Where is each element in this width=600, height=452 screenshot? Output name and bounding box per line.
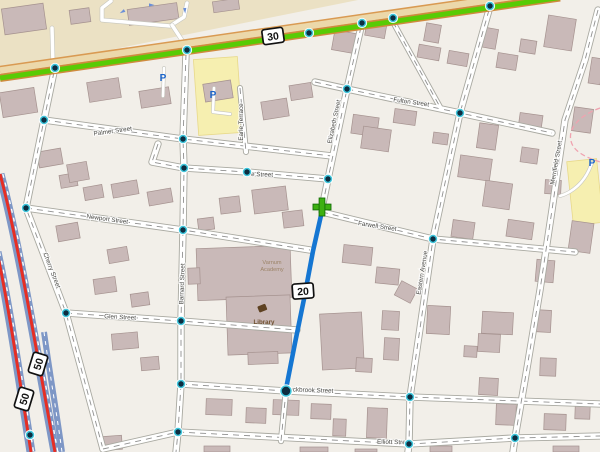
waypoint-node[interactable]: [304, 28, 314, 38]
building: [140, 356, 159, 371]
node-core: [359, 20, 364, 25]
map-canvas[interactable]: 30205050Palmer Streete StreetFulton Stre…: [0, 0, 600, 452]
building: [206, 399, 233, 416]
waypoint-node[interactable]: [388, 13, 398, 23]
node-core: [430, 236, 435, 241]
node-core: [23, 205, 28, 210]
waypoint-node[interactable]: [510, 433, 520, 443]
waypoint-node[interactable]: [342, 84, 352, 94]
route-end-node[interactable]: [279, 384, 292, 397]
building: [69, 8, 91, 25]
node-core: [52, 65, 57, 70]
building: [111, 332, 138, 350]
node-core: [41, 117, 46, 122]
route-shield: 30: [262, 27, 285, 45]
building: [520, 147, 539, 164]
building: [553, 446, 579, 452]
building: [83, 184, 104, 200]
minor-road: [52, 28, 53, 63]
building: [366, 408, 387, 439]
building: [375, 267, 400, 285]
building: [382, 311, 400, 331]
building: [479, 378, 499, 396]
building: [203, 80, 233, 102]
building: [478, 333, 501, 352]
building: [107, 246, 129, 263]
parking-icon: P: [210, 90, 217, 101]
building: [67, 161, 90, 182]
building: [196, 245, 292, 300]
waypoint-node[interactable]: [323, 174, 333, 184]
building: [575, 406, 590, 420]
building: [496, 53, 518, 71]
building: [311, 404, 332, 420]
map-viewport[interactable]: 30205050Palmer Streete StreetFulton Stre…: [0, 0, 600, 452]
waypoint-node[interactable]: [242, 167, 252, 177]
waypoint-node[interactable]: [357, 18, 367, 28]
building: [432, 132, 448, 145]
waypoint-node[interactable]: [405, 392, 415, 402]
building: [300, 447, 328, 452]
school-label: Academy: [260, 267, 284, 273]
building: [426, 305, 450, 334]
waypoint-node[interactable]: [428, 234, 438, 244]
node-core: [282, 387, 290, 395]
building: [506, 219, 534, 239]
building: [248, 351, 278, 364]
building: [342, 245, 373, 266]
node-core: [178, 318, 183, 323]
waypoint-node[interactable]: [25, 430, 35, 440]
building: [464, 346, 478, 358]
plus-icon: [319, 198, 325, 216]
waypoint-node[interactable]: [173, 427, 183, 437]
building: [0, 87, 38, 117]
building: [261, 98, 289, 120]
waypoint-node[interactable]: [50, 63, 60, 73]
node-core: [390, 15, 395, 20]
node-core: [407, 394, 412, 399]
waypoint-node[interactable]: [178, 225, 188, 235]
node-core: [344, 86, 349, 91]
building: [393, 109, 417, 126]
building: [1, 3, 46, 35]
building: [204, 446, 230, 452]
street-label: Barnard Street: [178, 263, 186, 304]
node-core: [180, 227, 185, 232]
node-core: [175, 429, 180, 434]
building: [424, 23, 442, 43]
building: [430, 446, 452, 452]
node-core: [512, 435, 517, 440]
route-shield-number: 30: [267, 30, 280, 44]
school-label: Varnum: [262, 260, 282, 266]
building: [519, 39, 537, 54]
waypoint-node[interactable]: [176, 379, 186, 389]
route-shield: 20: [292, 283, 314, 299]
route-shield-number: 20: [297, 286, 310, 299]
node-core: [180, 136, 185, 141]
waypoint-node[interactable]: [404, 439, 414, 449]
waypoint-node[interactable]: [39, 115, 49, 125]
parking-icon: P: [160, 73, 167, 84]
node-core: [487, 3, 492, 8]
building: [130, 292, 150, 307]
waypoint-node[interactable]: [182, 45, 192, 55]
building: [197, 217, 214, 231]
building: [451, 220, 475, 240]
node-core: [406, 441, 411, 446]
building: [282, 210, 304, 228]
building: [289, 82, 313, 100]
street-label: Earle Terrace: [238, 103, 245, 141]
building: [571, 107, 593, 133]
building: [93, 277, 117, 295]
waypoint-node[interactable]: [178, 134, 188, 144]
building: [333, 419, 347, 436]
node-core: [244, 169, 249, 174]
node-core: [457, 110, 462, 115]
building: [540, 358, 557, 377]
waypoint-node[interactable]: [455, 108, 465, 118]
node-core: [325, 176, 330, 181]
waypoint-node[interactable]: [61, 308, 71, 318]
node-core: [27, 432, 32, 437]
building: [361, 126, 392, 152]
node-core: [178, 381, 183, 386]
building: [56, 222, 80, 242]
building: [481, 311, 513, 335]
building: [356, 358, 373, 373]
building: [544, 414, 567, 431]
node-core: [181, 165, 186, 170]
parking-icon: P: [589, 158, 596, 169]
building: [496, 404, 517, 426]
building: [458, 155, 493, 181]
building: [252, 186, 289, 214]
waypoint-node[interactable]: [21, 203, 31, 213]
node-core: [306, 30, 311, 35]
building: [383, 338, 399, 361]
building: [188, 268, 201, 284]
node-core: [184, 47, 189, 52]
street-label: e Street: [251, 171, 274, 179]
waypoint-node[interactable]: [176, 316, 186, 326]
building: [544, 15, 577, 51]
waypoint-node[interactable]: [485, 1, 495, 11]
library-label: Library: [254, 319, 276, 326]
building: [476, 123, 498, 150]
waypoint-node[interactable]: [179, 163, 189, 173]
building: [219, 196, 241, 214]
building: [246, 408, 267, 424]
building: [482, 180, 512, 210]
node-core: [63, 310, 68, 315]
